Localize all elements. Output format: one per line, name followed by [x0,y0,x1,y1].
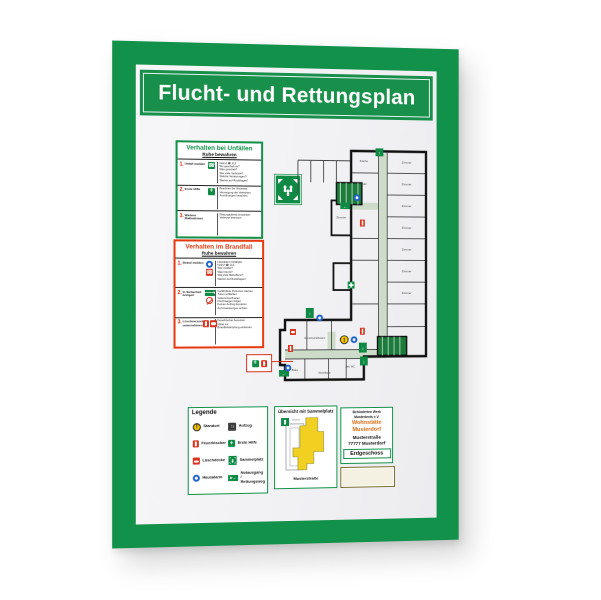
svg-text:Zimmer: Zimmer [402,226,412,230]
row-text: Beachten der Hinweise Versorgung der Ver… [217,187,260,209]
row-text: Hausalarm betätigen Notruf ☎ 112 Wer mel… [215,260,261,286]
legend-item-feuerloescher: Feuerlöscher [191,435,226,453]
row-label: Erste Hilfe [185,187,206,209]
svg-text:↓: ↓ [362,346,364,352]
accident-row-2: 2. Erste Hilfe + Beachten der Hinweise V… [178,184,262,211]
row-text: Rettungsdienst einweisen Verletzte betre… [217,213,260,235]
site-sketch [275,413,336,476]
svg-text:Zimmer: Zimmer [402,182,412,186]
aufzug-icon: ↑↓ [228,422,236,430]
evacuation-plan-poster: Flucht- und Rettungsplan Verhalten bei U… [112,40,459,548]
callout-leader-line [270,361,293,363]
sammelplatz-icon [228,456,237,465]
plan-title-banner: Flucht- und Rettungsplan [140,70,433,121]
svg-text:Abstellraum: Abstellraum [318,372,330,375]
legend-item-aufzug: ↑↓ Aufzug [226,417,265,435]
svg-text:Beh. WC: Beh. WC [345,366,355,369]
legend-box: Legende ! Standort ↑↓ Aufzug Feuerlösche… [188,406,268,495]
firstaid-extinguisher-callout: + [246,354,272,372]
svg-text:Zimmer: Zimmer [336,215,346,219]
first-aid-icon: + [252,360,259,367]
hausalarm-icon [206,261,213,268]
svg-text:Gemeinschaftsraum: Gemeinschaftsraum [304,337,325,340]
accident-row-3: 3. Weitere Maßnahmen Rettungsdienst einw… [178,210,262,236]
legend-item-loeschdecke: Löschdecke [191,452,226,470]
svg-text:↑: ↑ [378,151,380,157]
standort-icon: ! [340,336,348,345]
svg-text:↑: ↑ [309,311,311,317]
plan-paper: Flucht- und Rettungsplan Verhalten bei U… [136,64,437,524]
fire-instructions-box: Verhalten im Brandfall Ruhe bewahren 1. … [174,239,265,348]
fire-phone-icon: ☎ [206,269,213,276]
svg-text:Zimmer: Zimmer [402,269,412,273]
no-elevator-icon [206,297,213,304]
row-label: Weitere Maßnahmen [185,213,206,235]
legend-item-notausgang: ▸→ Notausgang / Rettungsweg [226,468,265,486]
row-text: Gefährdete Personen warnen Türen schließ… [215,290,261,316]
svg-text:Zimmer: Zimmer [402,204,412,208]
fire-row-3: 3. Löschversuch unternehmen Feuerlöscher… [176,317,263,347]
fire-extinguisher-icon [202,320,208,327]
fire-box-header: Verhalten im Brandfall Ruhe bewahren [176,241,263,258]
notausgang-icon: ▸→ [228,474,238,480]
svg-text:Büro: Büro [292,368,299,372]
svg-text:Zimmer: Zimmer [402,248,412,252]
svg-text:Zimmer: Zimmer [402,291,412,295]
feuerloescher-icon [193,440,199,447]
fire-row-1: 1. Brand melden ☎ Hausalarm betätigen No… [176,258,263,288]
accident-row-1: 1. Unfall melden ☎ Notruf ☎ 112 Wo gesch… [178,158,262,185]
sammelplatz-icon [281,417,289,425]
row-label: In Sicherheit bringen [183,290,204,316]
hausalarm-icon [193,475,200,482]
legend-item-sammelplatz: Sammelplatz [226,451,265,469]
fire-box-title: Verhalten im Brandfall [176,243,263,250]
fire-extinguisher-icon [261,360,267,367]
legend-item-erste-hilfe: + Erste Hilfe [226,434,265,452]
site-map [278,413,333,476]
row-label: Löschversuch unternehmen [183,319,204,345]
exit-sign-icon: 🡒 [204,290,214,296]
product-photo-scene: Flucht- und Rettungsplan Verhalten bei U… [0,0,601,600]
loeschdecke-icon [193,457,200,464]
row-label: Unfall melden [185,161,206,183]
page-title: Flucht- und Rettungsplan [158,81,415,110]
first-aid-icon: + [208,188,215,195]
svg-text:←: ← [343,204,348,210]
emergency-phone-icon: ☎ [208,162,215,169]
row-text: Feuerlöscher benutzen Mittel zur Brandbe… [215,319,261,345]
floor-plan: ← ↑ ↓ ↓ ← ↑ [277,146,434,398]
svg-text:!: ! [343,338,345,344]
empty-note-box [340,466,395,488]
fire-blanket-icon [209,320,216,327]
accident-instructions-box: Verhalten bei Unfällen Ruhe bewahren 1. … [176,140,264,239]
svg-text:Zimmer: Zimmer [402,161,412,165]
svg-text:↓: ↓ [363,360,365,366]
erste-hilfe-icon: + [228,440,235,447]
row-label: Brand melden [183,260,204,286]
row-text: Notruf ☎ 112 Wo geschah es? Was geschah?… [217,162,260,184]
accident-box-header: Verhalten bei Unfällen Ruhe bewahren [178,142,262,159]
site-overview-box: Übersicht mit Sammelplatz Musterstraße [274,405,337,489]
fire-blanket-icon [290,329,296,335]
address-box: Behinderten Werk Musterkreis e.V. Wohnst… [340,407,393,464]
svg-text:Küche: Küche [360,159,369,163]
legend-item-standort: ! Standort [191,418,226,436]
floor-label: Erdgeschoss [343,448,391,459]
fire-row-2: 2. In Sicherheit bringen 🡒 Gefährdete Pe… [176,287,263,317]
svg-text:←: ← [282,371,287,377]
accident-box-title: Verhalten bei Unfällen [178,144,262,152]
legend-item-hausalarm: Hausalarm [191,469,226,487]
first-aid-icon [348,282,355,289]
svg-text:Bad: Bad [361,182,367,186]
city-line: 77777 Musterdorf [341,440,392,447]
room-protrusions [331,200,351,290]
standort-icon: ! [193,423,201,431]
building-footprint [293,417,324,469]
